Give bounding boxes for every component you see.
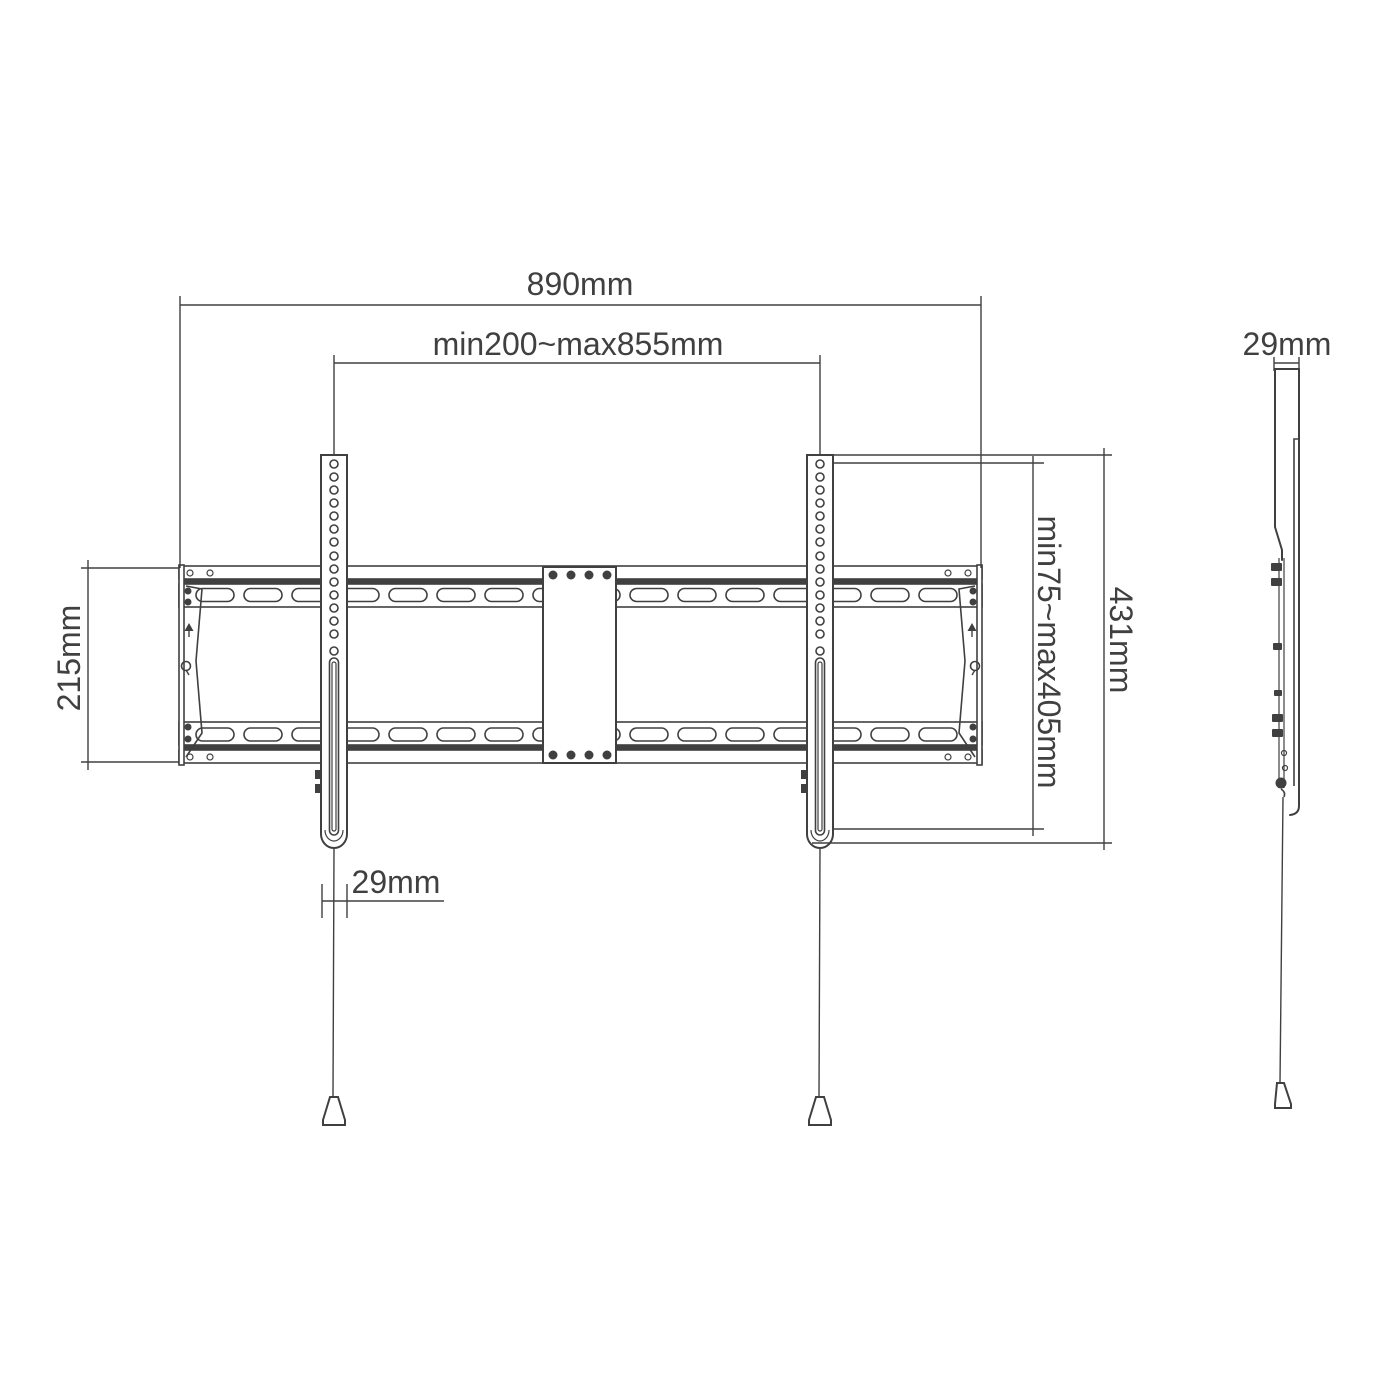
tv-mount-drawing: 890mm min200~max855mm 215mm 29mm min [0,0,1400,1400]
extension-lines [334,355,820,456]
front-view: 890mm min200~max855mm 215mm 29mm min [51,266,1139,1125]
bolt [1271,563,1282,571]
dim-overall-width-label: 890mm [527,266,634,302]
dim-mount-width-range: min200~max855mm [334,326,820,456]
bolt [1273,643,1282,650]
center-plate-outline [543,567,616,763]
dim-arm-width: 29mm [322,864,444,918]
arm-profile-front-edge [1275,369,1282,560]
extension-lines [81,568,179,762]
screw-hole [1283,766,1288,771]
dim-rail-height-label: 215mm [51,605,87,712]
dim-rail-height: 215mm [51,560,179,770]
side-profile [1271,369,1299,1108]
cord-pull [1275,1083,1291,1108]
bolt [549,751,558,760]
dim-side-depth-label: 29mm [1243,326,1332,362]
extension-lines [833,463,1044,829]
technical-drawing-page: 890mm min200~max855mm 215mm 29mm min [0,0,1400,1400]
dim-arm-height-label: 431mm [1103,587,1139,694]
bolt [1274,690,1282,696]
bolt [1272,714,1283,722]
bolt [567,571,576,580]
center-vesa-plate [543,567,616,763]
bolt [1272,729,1283,737]
bolt [603,571,612,580]
bolt [585,751,594,760]
dim-arm-width-label: 29mm [352,864,441,900]
bolt [549,571,558,580]
dim-side-depth: 29mm [1243,326,1332,371]
cord-hook [1281,789,1285,797]
dim-vesa-range-label: min75~max405mm [1031,516,1067,789]
release-cord [1280,797,1283,1083]
dim-mount-range-label: min200~max855mm [433,326,724,362]
bolt [603,751,612,760]
dim-arm-height: 431mm [812,448,1139,850]
dim-vesa-height-range: min75~max405mm [833,456,1067,836]
dim-overall-width: 890mm [180,266,981,568]
bolt [567,751,576,760]
bolt [585,571,594,580]
cord-anchor [1276,778,1287,789]
left-mounting-arm [315,455,347,1125]
right-mounting-arm [801,455,833,1125]
side-view: 29mm [1243,326,1332,1108]
bolt [1271,578,1282,586]
